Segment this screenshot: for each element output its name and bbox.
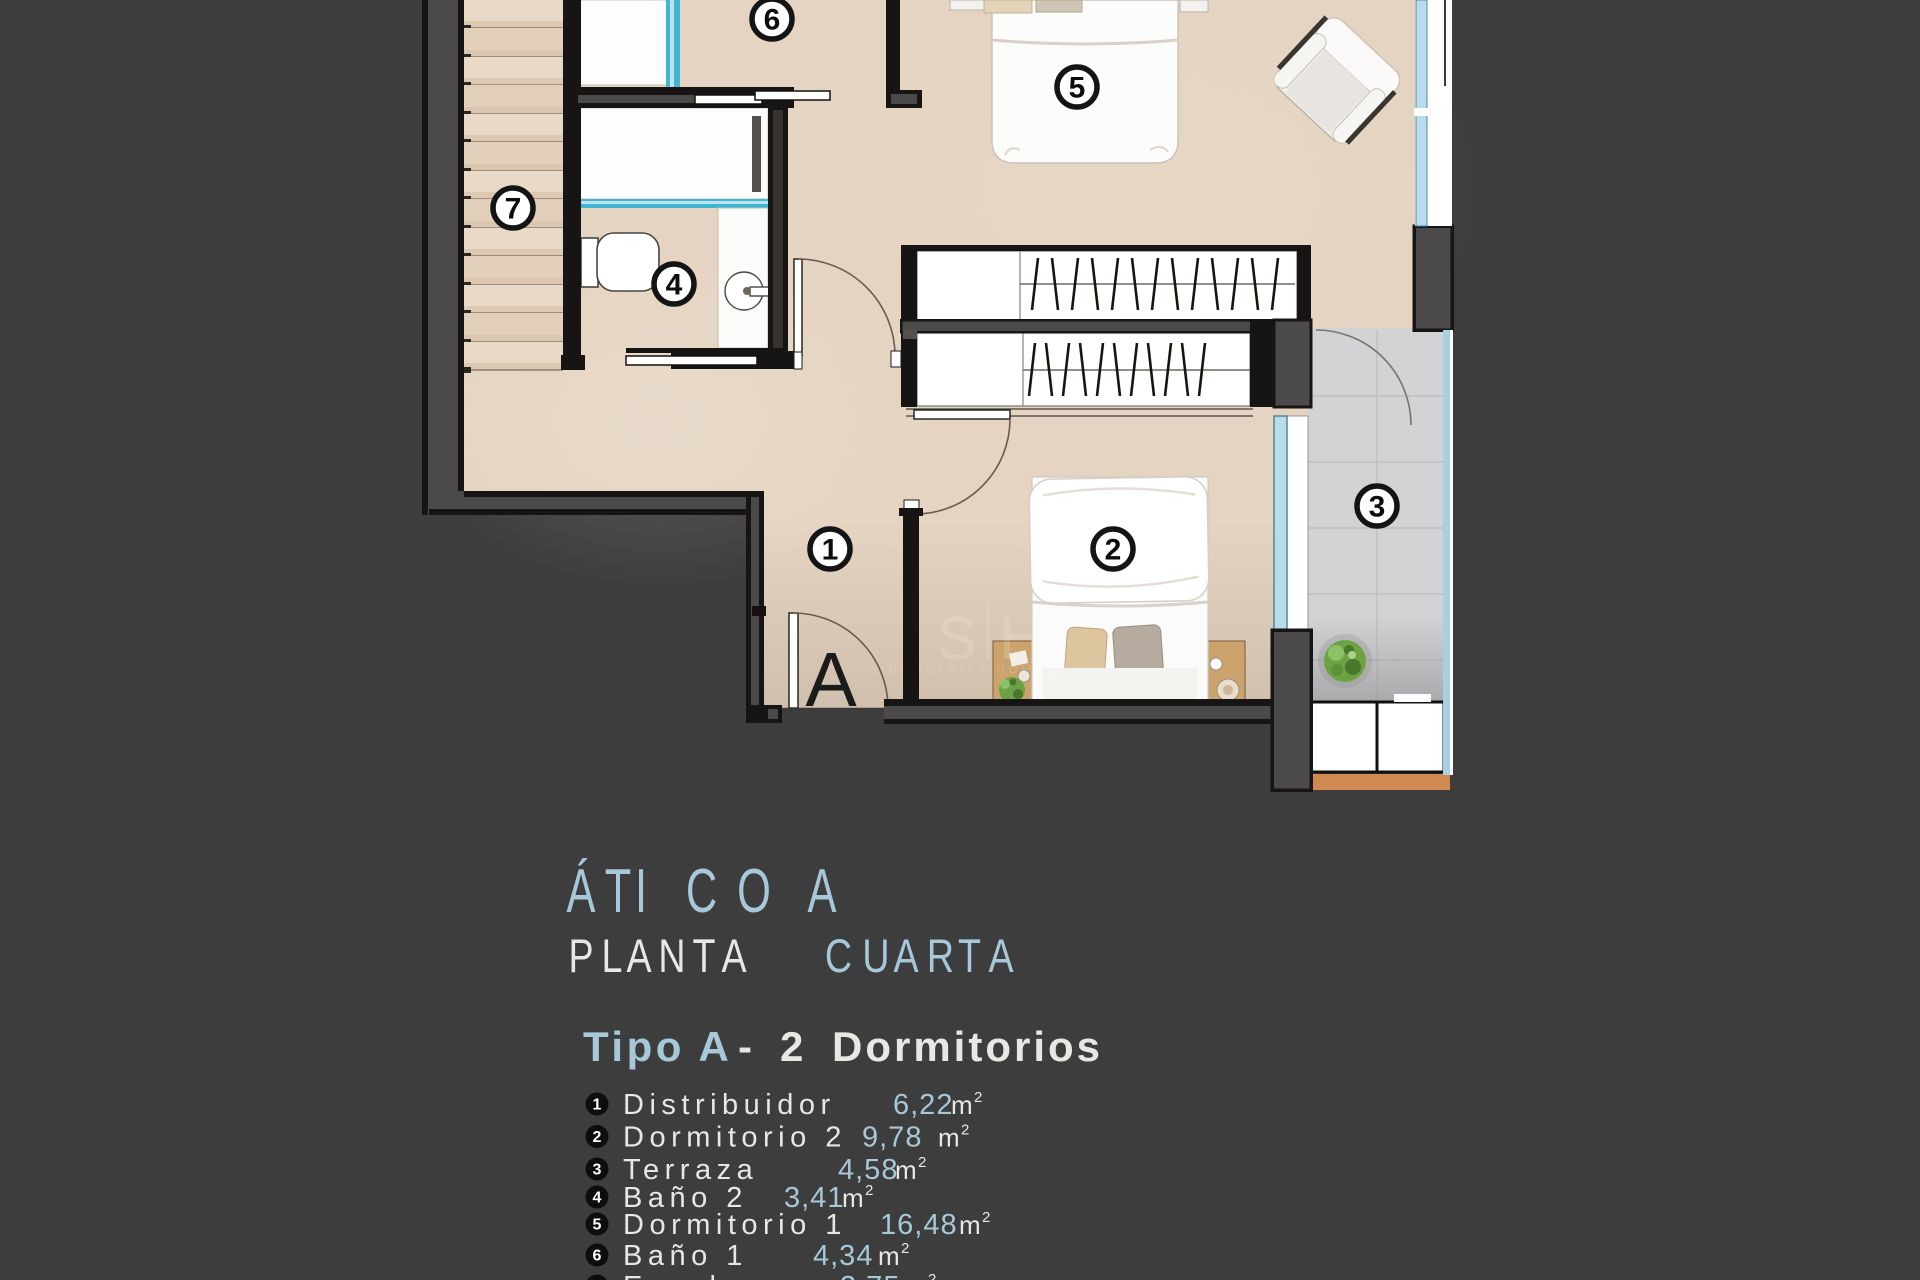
svg-text:2: 2 <box>901 1240 909 1257</box>
svg-text:A: A <box>626 930 652 983</box>
svg-text:6: 6 <box>593 1248 602 1265</box>
svg-text:1: 1 <box>593 1097 602 1114</box>
svg-text:I: I <box>635 858 647 926</box>
svg-text:m: m <box>895 1155 917 1185</box>
svg-text:T: T <box>693 930 716 983</box>
svg-text:m: m <box>878 1241 900 1271</box>
svg-text:SINGULARITY HOMES: SINGULARITY HOMES <box>870 664 1058 676</box>
svg-text:m: m <box>905 1272 927 1280</box>
svg-text:A: A <box>808 858 837 926</box>
svg-text:Tipo A: Tipo A <box>583 1023 732 1070</box>
svg-text:7: 7 <box>505 193 522 226</box>
svg-text:9,78: 9,78 <box>862 1122 922 1154</box>
svg-text:A: A <box>988 930 1014 983</box>
svg-text:Baño 1: Baño 1 <box>623 1240 748 1272</box>
svg-text:4: 4 <box>666 269 683 302</box>
svg-text:2: 2 <box>918 1154 926 1171</box>
svg-text:1: 1 <box>822 534 839 567</box>
svg-text:Escalera: Escalera <box>623 1271 780 1280</box>
svg-text:O: O <box>737 858 771 926</box>
svg-text:m: m <box>938 1123 960 1153</box>
svg-text:3,75: 3,75 <box>840 1271 900 1280</box>
svg-text:3: 3 <box>593 1162 602 1179</box>
svg-text:A: A <box>893 930 919 983</box>
svg-text:Dormitorio 2: Dormitorio 2 <box>623 1122 847 1154</box>
svg-text:2: 2 <box>982 1209 990 1226</box>
svg-text:Dormitorios: Dormitorios <box>832 1023 1103 1070</box>
svg-text:3: 3 <box>1369 491 1386 524</box>
svg-text:5: 5 <box>1069 72 1086 105</box>
svg-text:m: m <box>959 1210 981 1240</box>
svg-text:C: C <box>686 858 717 926</box>
svg-text:Distribuidor: Distribuidor <box>623 1089 836 1121</box>
svg-text:5: 5 <box>593 1217 602 1234</box>
svg-text:2: 2 <box>1105 534 1122 567</box>
svg-text:N: N <box>658 930 685 983</box>
svg-text:2: 2 <box>961 1122 969 1139</box>
svg-text:4: 4 <box>593 1190 602 1207</box>
svg-text:L: L <box>602 930 623 983</box>
svg-text:T: T <box>958 930 981 983</box>
svg-text:16,48: 16,48 <box>880 1209 958 1241</box>
svg-text:T: T <box>605 858 632 926</box>
svg-text:2: 2 <box>974 1089 982 1106</box>
svg-text:6: 6 <box>764 4 781 37</box>
svg-text:-: - <box>738 1023 752 1070</box>
svg-text:C: C <box>825 930 852 983</box>
svg-text:2: 2 <box>928 1271 936 1280</box>
svg-text:Dormitorio 1: Dormitorio 1 <box>623 1209 847 1241</box>
svg-text:U: U <box>862 930 889 983</box>
svg-text:4,34: 4,34 <box>813 1240 873 1272</box>
svg-text:2: 2 <box>865 1182 873 1199</box>
svg-text:A: A <box>721 930 747 983</box>
svg-text:2: 2 <box>780 1023 803 1070</box>
svg-text:6,22: 6,22 <box>893 1089 953 1121</box>
svg-text:m: m <box>951 1090 973 1120</box>
svg-text:Á: Á <box>567 858 596 926</box>
svg-text:H: H <box>999 605 1042 672</box>
svg-text:S: S <box>937 605 977 672</box>
svg-text:R: R <box>927 930 954 983</box>
svg-text:2: 2 <box>593 1129 602 1146</box>
svg-text:P: P <box>568 930 593 983</box>
